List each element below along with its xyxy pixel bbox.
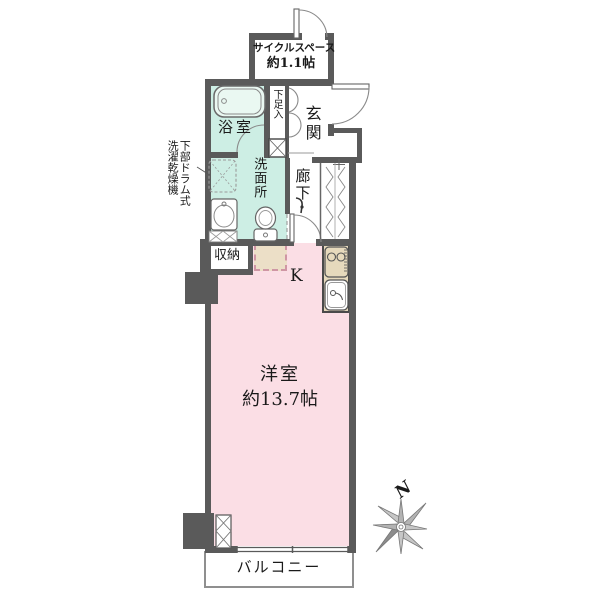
entrance-label: 玄関 (303, 105, 321, 143)
kitchen-sink (325, 280, 348, 310)
pillar (185, 272, 218, 304)
door-arc (332, 87, 369, 124)
laundry-note-col1: 下部ドラム式 (178, 140, 190, 232)
washroom-label: 洗面所 (251, 157, 265, 199)
bathtub (214, 86, 265, 117)
main-room-label: 洋室 約13.7帖 (210, 365, 350, 410)
door-arc (289, 113, 301, 137)
shoe-box-label: 下足入 (271, 89, 282, 119)
storage-label: 収納 (206, 249, 248, 263)
laundry-note-col2: 洗濯乾燥機 (166, 140, 178, 232)
cycle-space-size: 約1.1帖 (253, 57, 329, 71)
wash-basin (211, 199, 237, 230)
door-arc (299, 10, 327, 37)
plan-drawing (0, 0, 600, 600)
closet-hangers (321, 163, 346, 239)
cycle-space-label: サイクルスペース 約1.1帖 (253, 43, 329, 71)
washer-dryer-space (209, 160, 236, 192)
laundry-note: 下部ドラム式 洗濯乾燥機 (166, 140, 190, 232)
stove (325, 247, 348, 277)
floor-plan: サイクルスペース 約1.1帖 浴室 下足入 玄関 廊下 洗面所 下部ドラム式 洗… (0, 0, 600, 600)
toilet (254, 207, 277, 241)
kitchen-label: K (290, 267, 303, 286)
cycle-space-name: サイクルスペース (253, 43, 329, 55)
door-arc (289, 88, 298, 112)
balcony-window (237, 546, 348, 553)
pillar (183, 513, 214, 549)
main-room-size: 約13.7帖 (210, 390, 350, 410)
balcony-label: バルコニー (204, 559, 354, 576)
door-arc (294, 215, 321, 242)
side-window (216, 515, 231, 548)
main-room-name: 洋室 (210, 365, 350, 385)
hallway-label: 廊下 (294, 168, 311, 202)
washroom-hatch-box (209, 231, 237, 242)
bathroom-label: 浴室 (212, 119, 260, 136)
compass-rose (373, 499, 427, 554)
pipe-space-box (269, 139, 286, 157)
